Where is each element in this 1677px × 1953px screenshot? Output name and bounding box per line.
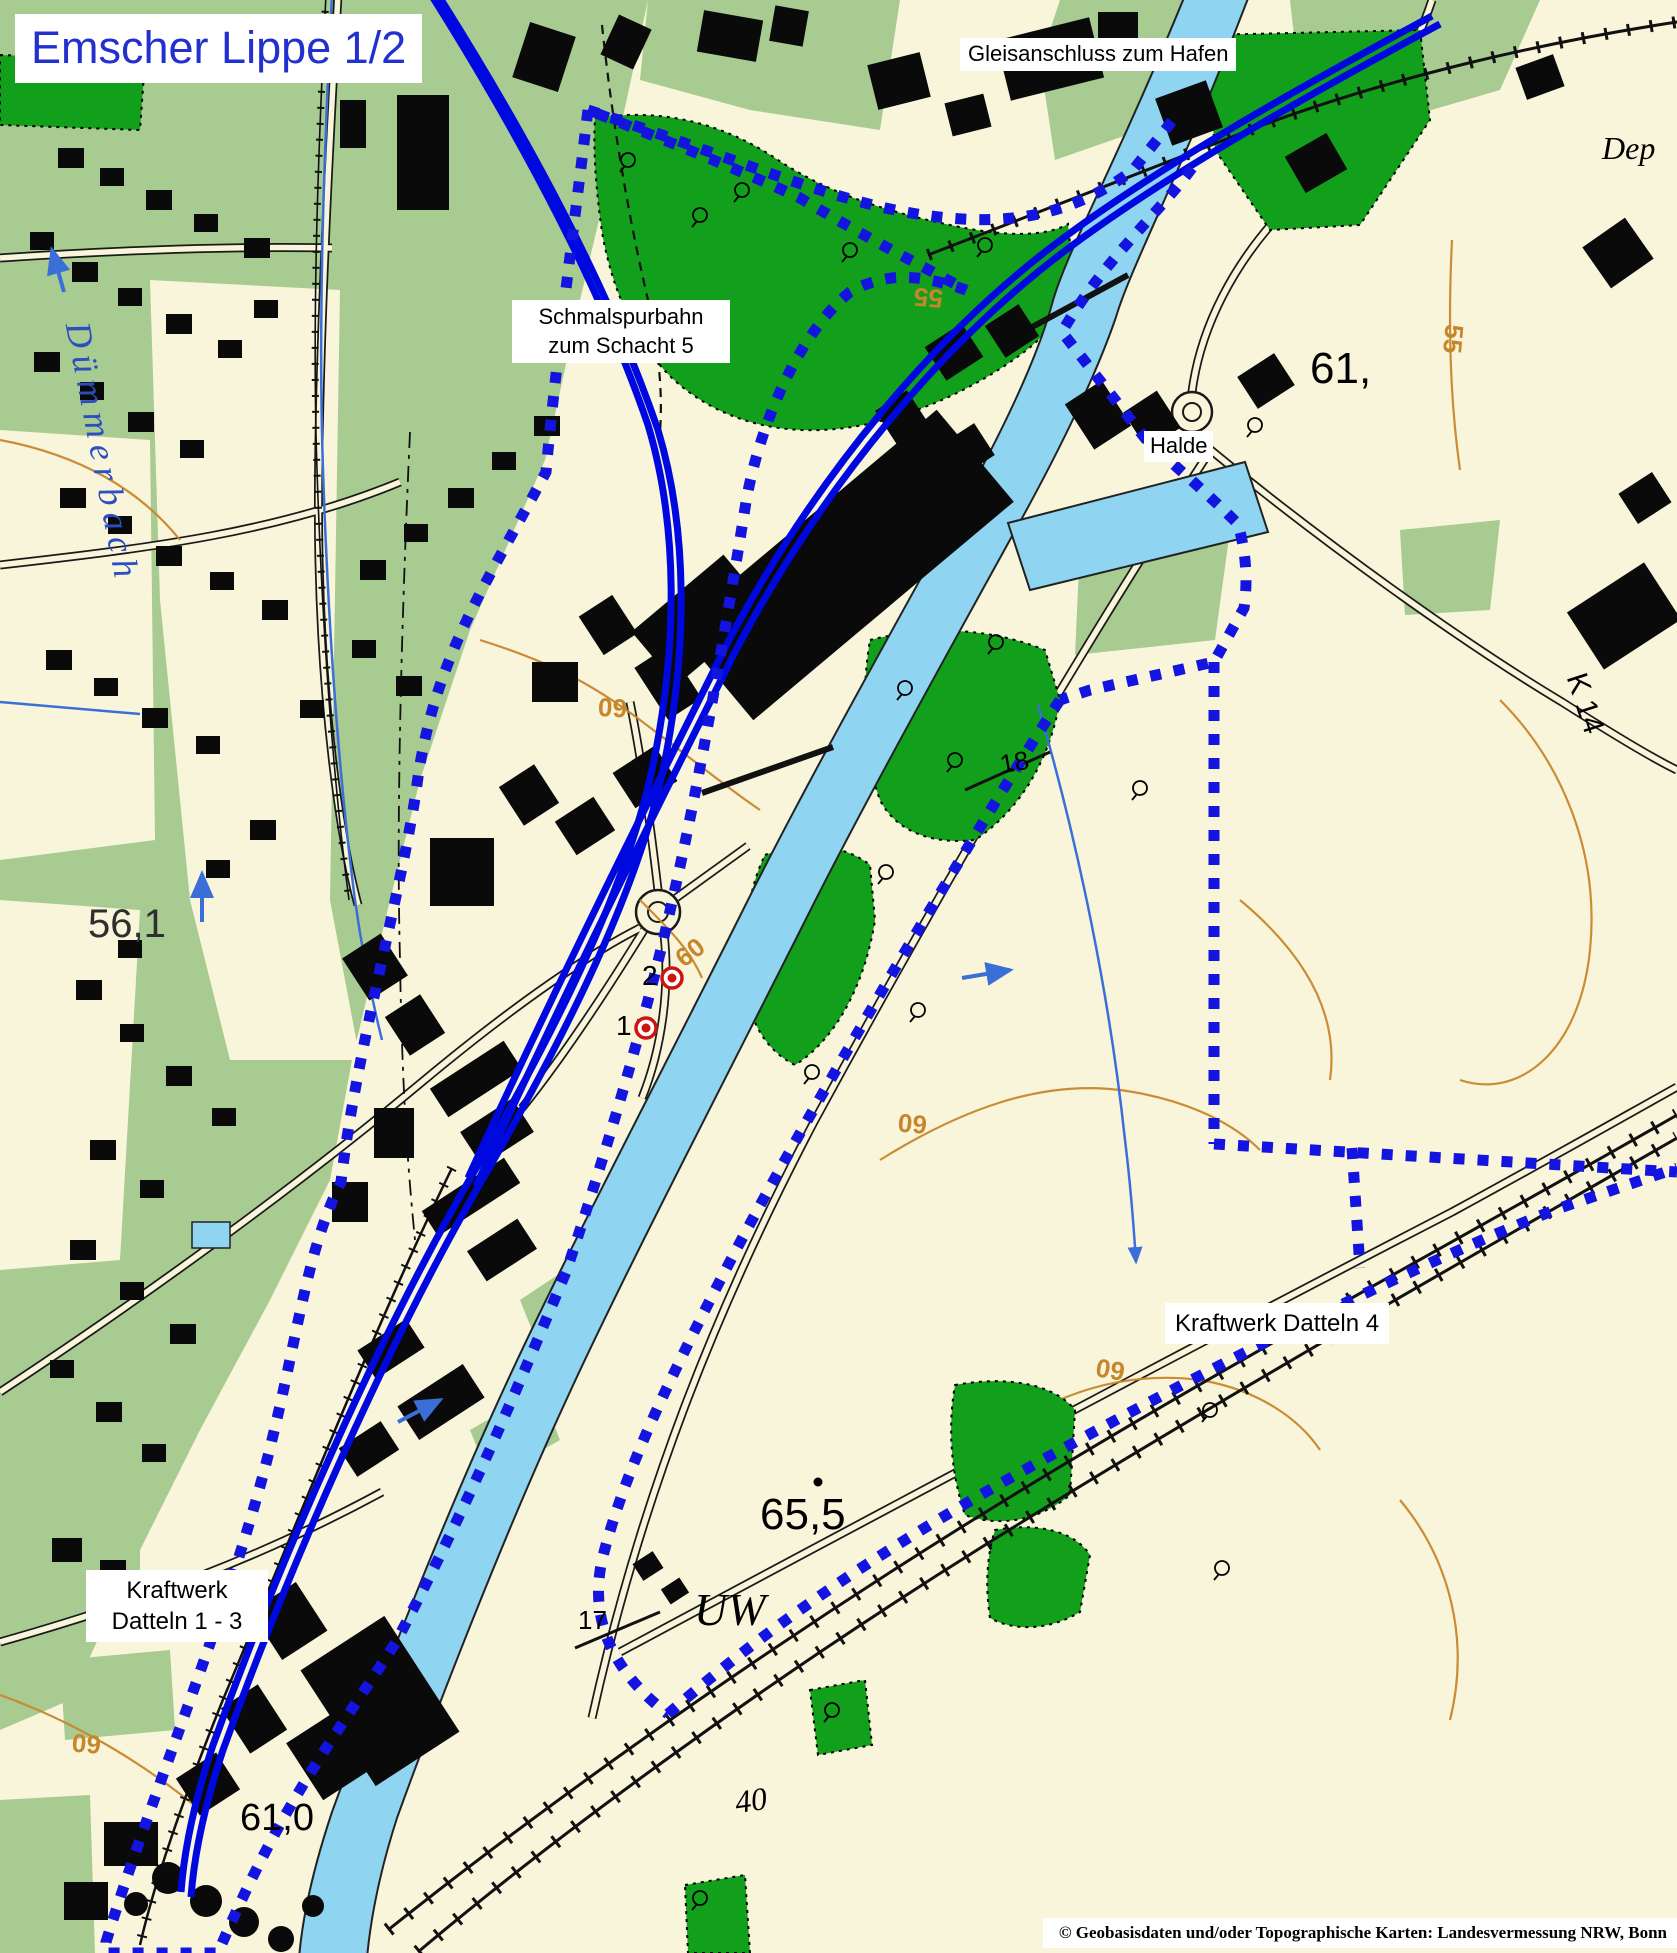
elevation-61-0: 61,0 bbox=[240, 1794, 314, 1843]
number-40: 40 bbox=[732, 1778, 769, 1824]
gleisanschluss-label: Gleisanschluss zum Hafen bbox=[960, 38, 1236, 71]
site-marker-2-number: 2 bbox=[642, 958, 658, 994]
kraftwerk-datteln4-label: Kraftwerk Datteln 4 bbox=[1165, 1303, 1389, 1344]
site-marker-2 bbox=[662, 968, 682, 988]
site-marker-1 bbox=[636, 1018, 656, 1038]
contour-60: 60 bbox=[597, 689, 628, 724]
canal-km-17: 17 bbox=[578, 1604, 607, 1638]
contour-55: 55 bbox=[913, 279, 945, 315]
site-marker-1-number: 1 bbox=[616, 1008, 632, 1044]
contour-60: 60 bbox=[897, 1105, 929, 1141]
halde-label: Halde bbox=[1144, 431, 1213, 462]
schmalspurbahn-label: Schmalspurbahn zum Schacht 5 bbox=[512, 300, 730, 363]
contour-60: 60 bbox=[1093, 1350, 1127, 1388]
kraftwerk-datteln13-label: Kraftwerk Datteln 1 - 3 bbox=[86, 1570, 268, 1642]
elevation-65-5: 65,5 bbox=[760, 1486, 846, 1543]
elevation-56-1: 56,1 bbox=[88, 898, 166, 950]
deponie-partial-label: Dep bbox=[1602, 128, 1655, 170]
map-canvas bbox=[0, 0, 1677, 1953]
substation-label: UW bbox=[694, 1580, 766, 1640]
pond bbox=[192, 1222, 230, 1248]
topographic-map: Emscher Lippe 1/2 Gleisanschluss zum Haf… bbox=[0, 0, 1677, 1953]
map-title: Emscher Lippe 1/2 bbox=[15, 14, 422, 83]
canal-km-18: 18 bbox=[997, 744, 1031, 782]
contour-55: 55 bbox=[1434, 323, 1470, 355]
contour-60: 60 bbox=[71, 1725, 103, 1761]
copyright-notice: © Geobasisdaten und/oder Topographische … bbox=[1043, 1918, 1677, 1948]
elevation-61-canal: 61, bbox=[1310, 340, 1371, 397]
